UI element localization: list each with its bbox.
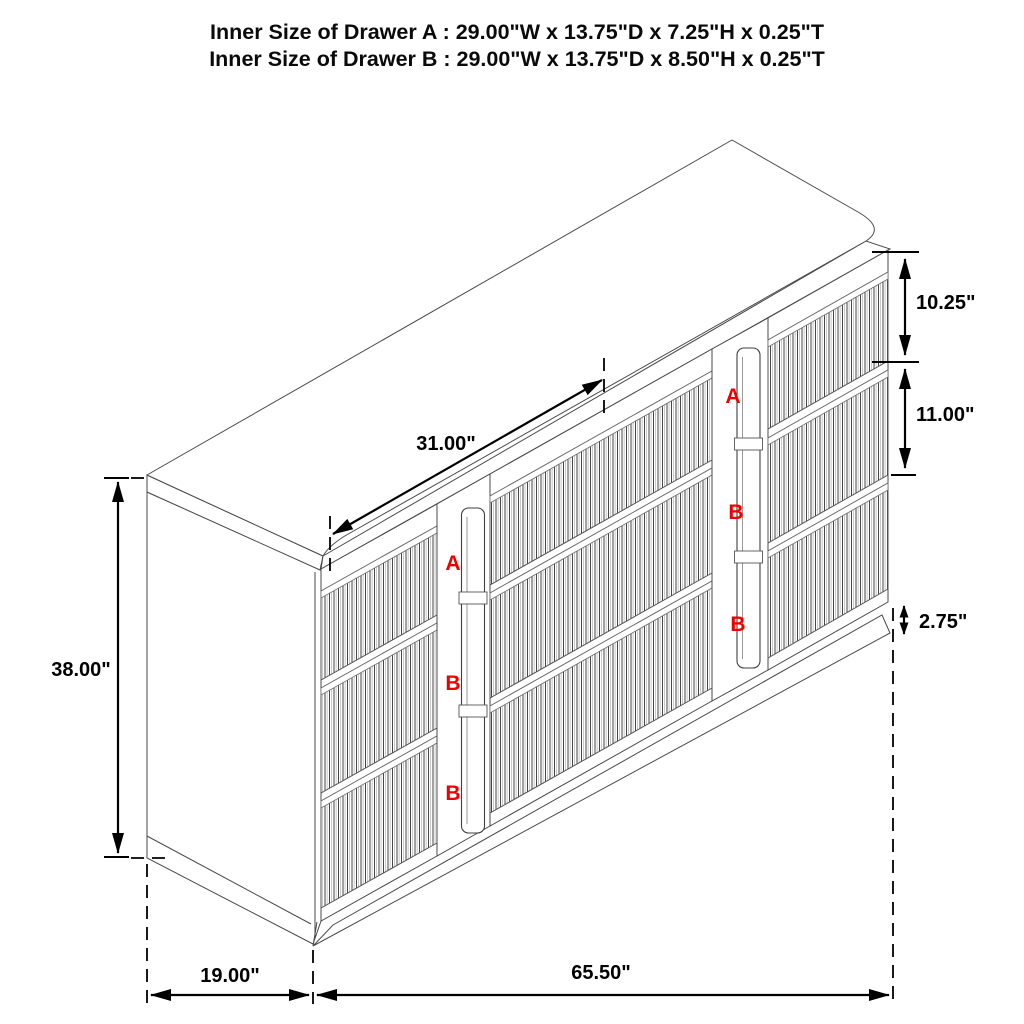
dim-label-10-25: 10.25" (916, 292, 976, 314)
dim-label-65-50: 65.50" (571, 962, 631, 984)
drawer-letter: B (445, 782, 460, 805)
dim-label-11-00: 11.00" (916, 404, 974, 426)
dim-base-height: 2.75" (904, 606, 967, 634)
drawer-column-left (321, 504, 437, 921)
drawer-letter: A (725, 385, 740, 408)
drawer-column-right (768, 250, 888, 670)
cabinet-side-panel (147, 492, 321, 944)
drawer-letter: B (728, 501, 743, 524)
diagram-canvas: A B B A B B 31.00" 38.00" 10.25" 11.00" (0, 0, 1024, 1024)
title-line-2: Inner Size of Drawer B : 29.00"W x 13.75… (209, 47, 825, 71)
dim-label-2-75: 2.75" (919, 611, 967, 633)
drawer-letter: B (445, 672, 460, 695)
title-line-1: Inner Size of Drawer A : 29.00"W x 13.75… (210, 20, 824, 44)
dim-depth: 19.00" (151, 965, 309, 995)
dim-label-19: 19.00" (200, 965, 260, 987)
drawer-letter: B (730, 613, 745, 636)
cabinet-drawing: A B B A B B (147, 140, 890, 946)
drawer-handle-left (459, 508, 487, 833)
diagram-title: Inner Size of Drawer A : 29.00"W x 13.75… (209, 20, 825, 71)
furniture-dimension-diagram: A B B A B B 31.00" 38.00" 10.25" 11.00" (0, 0, 1024, 1024)
dim-label-38: 38.00" (51, 659, 111, 681)
dim-label-31: 31.00" (416, 433, 476, 455)
dim-drawer-b-height: 11.00" (891, 369, 974, 475)
dim-overall-width: 65.50" (317, 962, 889, 995)
drawer-letter: A (445, 552, 460, 575)
